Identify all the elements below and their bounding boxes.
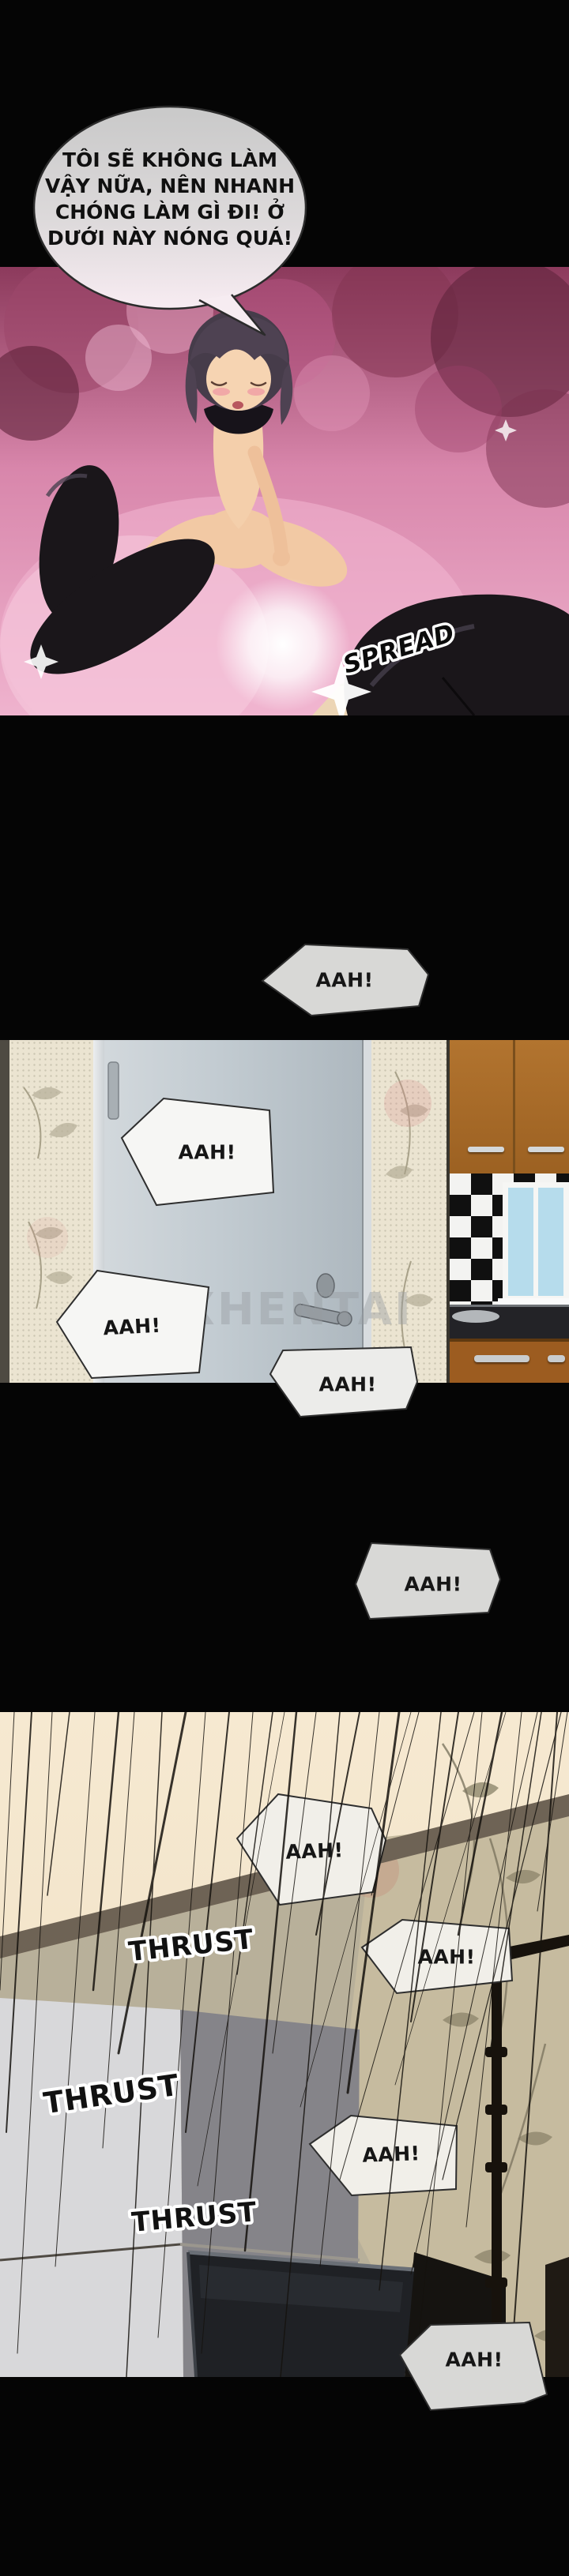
sfx-thrust-3: THRUST (130, 2196, 258, 2239)
aah-text-4: AAH! (318, 1373, 376, 1396)
sfx-spread: SPREAD (340, 618, 458, 679)
sfx-thrust-1: THRUST (127, 1924, 255, 1968)
aah-text-7: AAH! (417, 1946, 475, 1969)
aah-text-5: AAH! (404, 1573, 462, 1596)
aah-text-8: AAH! (362, 2142, 420, 2167)
aah-text-1: AAH! (315, 969, 373, 992)
sfx-thrust-2: THRUST (42, 2068, 182, 2121)
aah-text-2: AAH! (178, 1141, 236, 1164)
sfx-overlay: SPREAD THRUST THRUST THRUST (0, 0, 569, 2576)
aah-text-9: AAH! (445, 2349, 503, 2371)
comic-page: LXHENTAI (0, 0, 569, 2576)
aah-text-3: AAH! (103, 1314, 161, 1340)
aah-text-6: AAH! (285, 1838, 344, 1864)
